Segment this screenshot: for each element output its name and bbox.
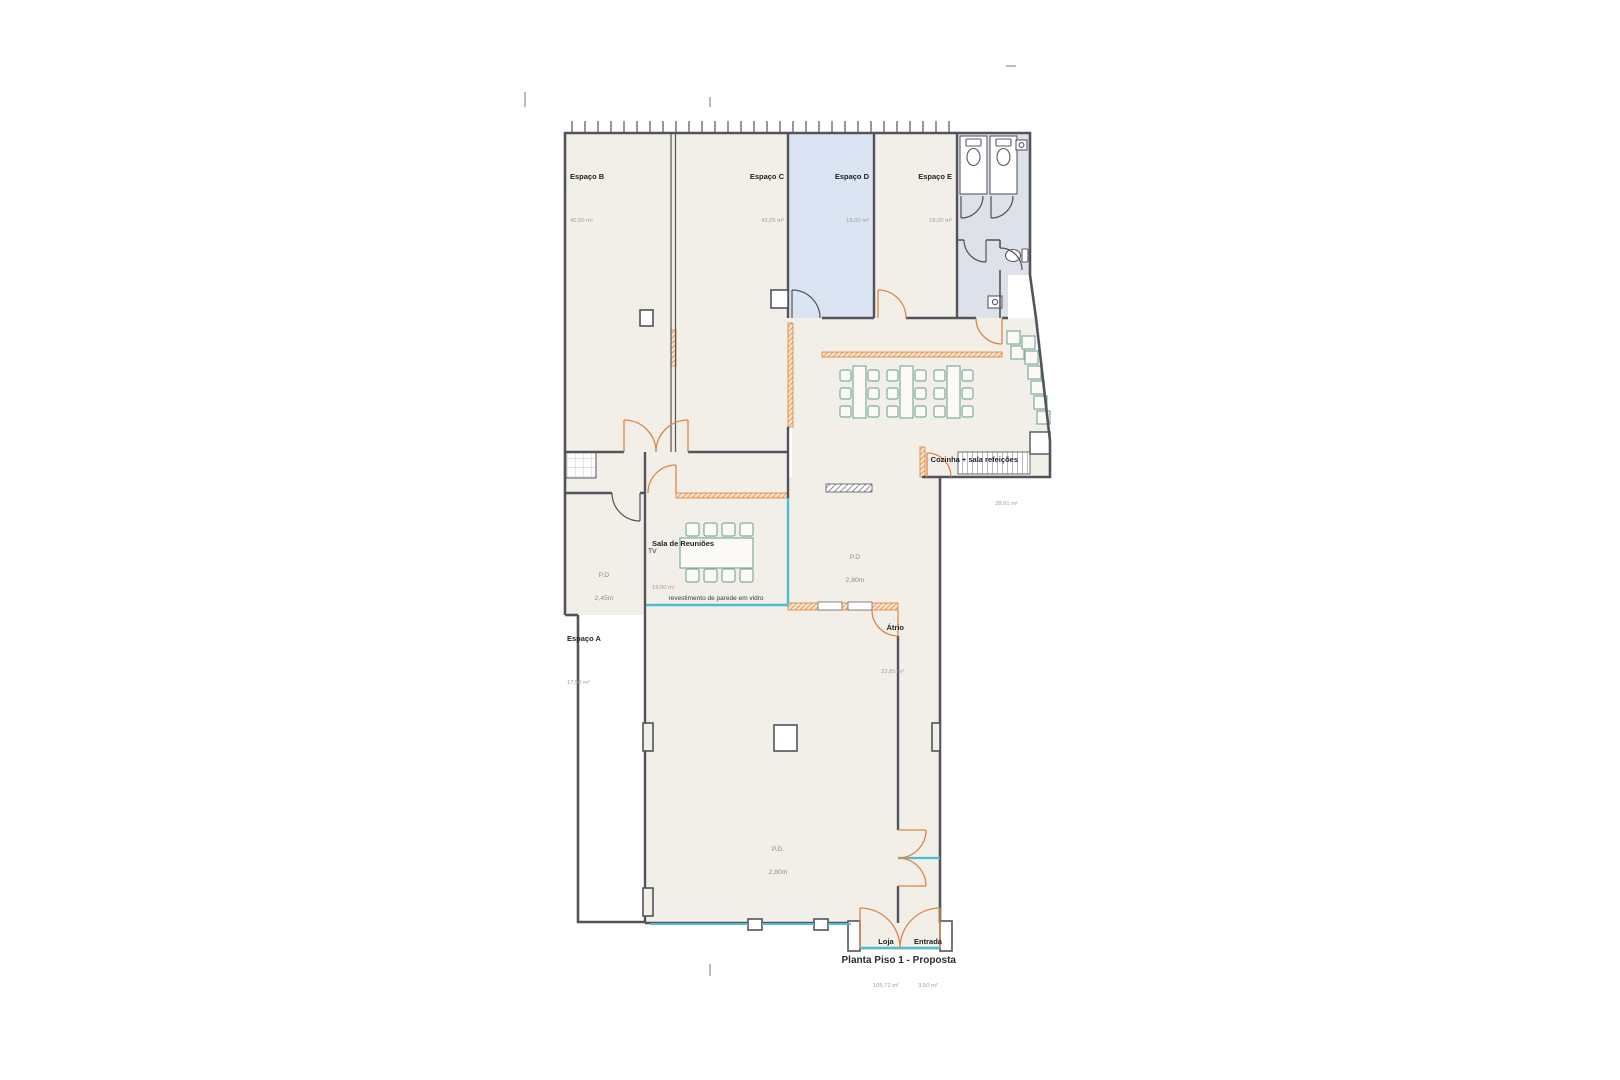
transom-panel: [848, 602, 872, 610]
stair-grid-box: [566, 452, 596, 478]
room-label-espaco-a: Espaço A 17,50 m²: [567, 598, 601, 705]
column: [774, 725, 797, 751]
glass-wall-note: revestimento de parede em vidro: [668, 595, 763, 602]
drawing-sheet: Espaço B 40,00 m² Espaço C 43,05 m² Espa…: [0, 0, 1620, 1080]
toilet-tank: [996, 139, 1011, 146]
wall-pilaster: [643, 723, 653, 751]
room-label-espaco-d: Espaço D 18,00 m²: [835, 136, 869, 243]
dining-table-group: [887, 366, 926, 418]
room-label-espaco-c: Espaço C 43,05 m²: [750, 136, 784, 243]
toilet-bowl: [967, 149, 980, 166]
room-label-atrio: Átrio 22,85 m²: [881, 587, 904, 694]
entrance-post: [848, 921, 860, 951]
sheet-title: Planta Piso 1 - Proposta: [842, 955, 956, 967]
closet-box: [1030, 432, 1050, 454]
room-label-cozinha: Cozinha + sala refeições 38,91 m²: [931, 419, 1018, 526]
toilet-bowl: [1006, 250, 1021, 262]
ceiling-height-label-loja: P.D. 2,80m: [769, 830, 788, 885]
room-label-espaco-e: Espaço E 18,00 m²: [918, 136, 952, 243]
existing-wall-hatch: [826, 484, 872, 492]
toilet-tank: [966, 139, 981, 146]
dining-table-group: [934, 366, 973, 418]
window-ticks: [572, 121, 949, 132]
room-label-espaco-b: Espaço B 40,00 m²: [570, 136, 604, 243]
ceiling-height-label-espaco-a: P.D 2,45m: [595, 556, 614, 611]
door-post: [814, 919, 828, 930]
floor-plan-svg: [0, 0, 1620, 1080]
transom-panel: [818, 602, 842, 610]
column: [640, 310, 653, 326]
dining-table-group: [840, 366, 879, 418]
door-post: [748, 919, 762, 930]
wall-pilaster: [932, 723, 940, 751]
toilet-tank: [1022, 249, 1028, 262]
toilet-bowl: [997, 149, 1010, 166]
ceiling-height-label-atrio: P.D 2,80m: [846, 538, 865, 593]
tv-annotation: TV: [648, 548, 657, 556]
wall-pilaster: [643, 888, 653, 916]
wall-pilaster: [771, 290, 788, 308]
sink: [1016, 140, 1027, 150]
room-fills: [565, 133, 1050, 950]
